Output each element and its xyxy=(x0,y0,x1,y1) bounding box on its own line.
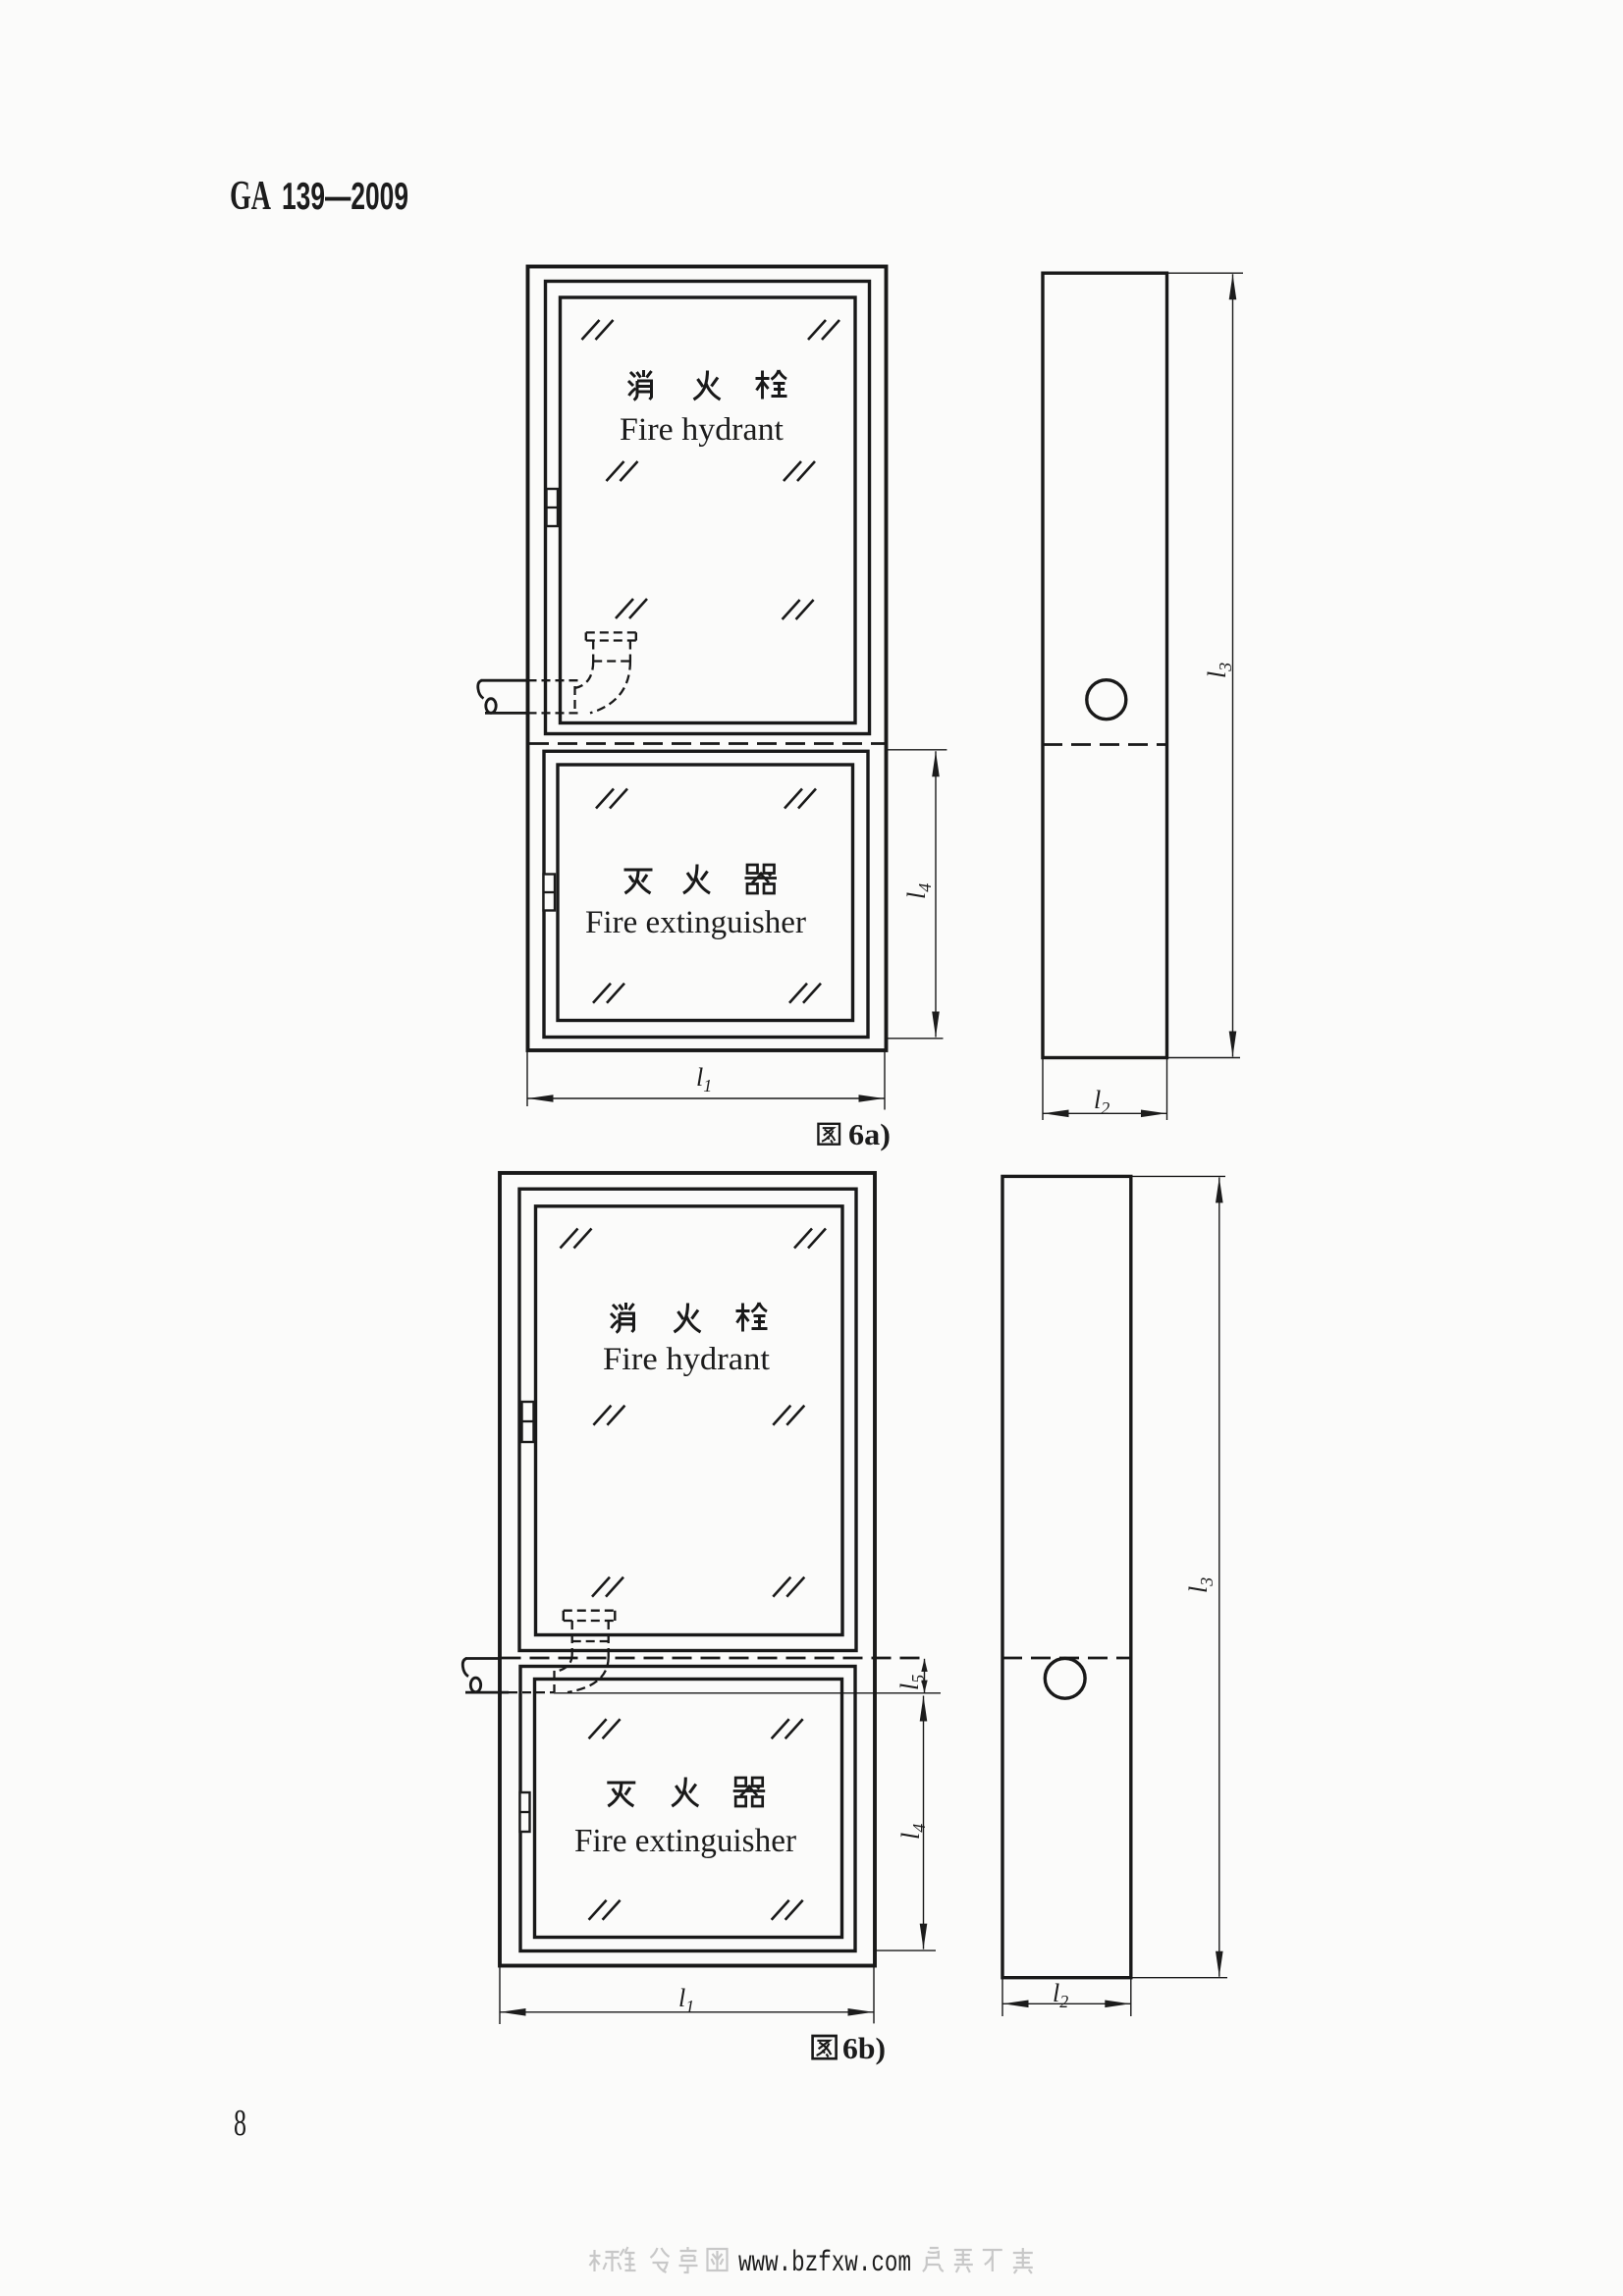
svg-text:Fire extinguisher: Fire extinguisher xyxy=(574,1823,797,1859)
svg-text:www.bzfxw.com: www.bzfxw.com xyxy=(738,2247,911,2280)
svg-text:6a): 6a) xyxy=(848,1117,891,1151)
svg-text:6b): 6b) xyxy=(842,2031,886,2065)
svg-text:Fire hydrant: Fire hydrant xyxy=(620,412,784,448)
svg-text:Fire extinguisher: Fire extinguisher xyxy=(585,905,806,940)
svg-text:8: 8 xyxy=(234,2103,246,2144)
svg-text:Fire hydrant: Fire hydrant xyxy=(603,1342,770,1377)
svg-text:139—2009: 139—2009 xyxy=(282,176,408,218)
svg-text:GA: GA xyxy=(230,174,271,219)
